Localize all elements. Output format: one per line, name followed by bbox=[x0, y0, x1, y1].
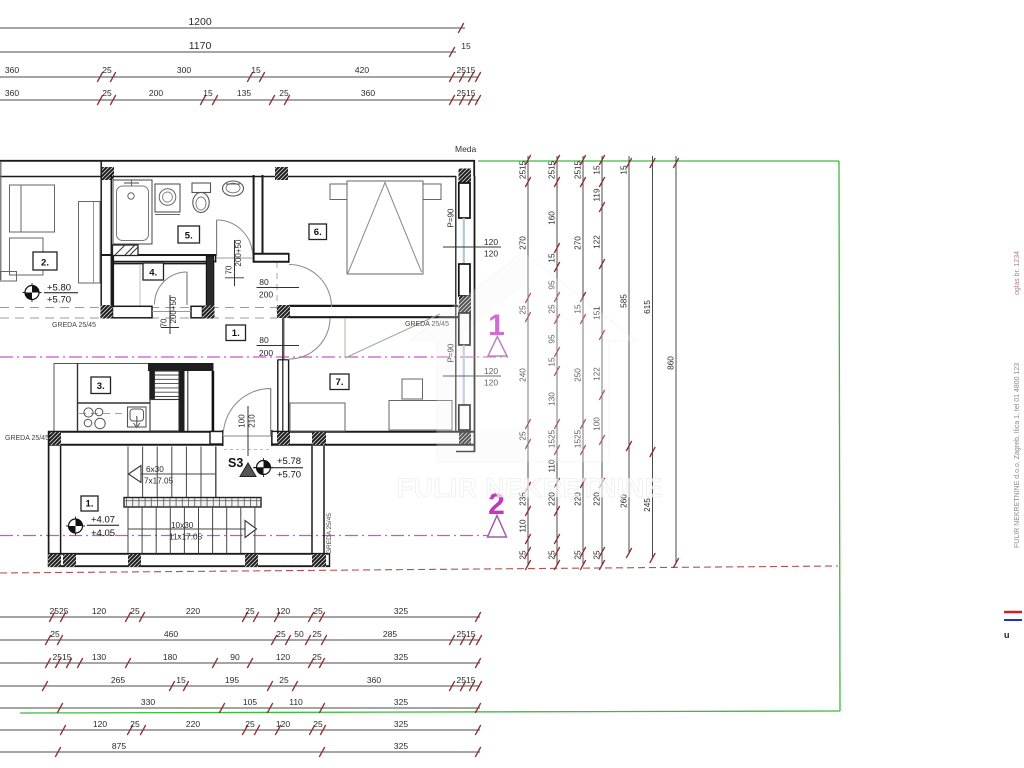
svg-text:25: 25 bbox=[313, 719, 323, 729]
svg-text:+5.70: +5.70 bbox=[47, 295, 71, 306]
svg-text:220: 220 bbox=[186, 719, 200, 729]
svg-text:200: 200 bbox=[149, 88, 163, 98]
svg-text:420: 420 bbox=[355, 65, 369, 75]
svg-text:70: 70 bbox=[160, 318, 169, 327]
svg-text:6.: 6. bbox=[314, 227, 322, 238]
svg-text:615: 615 bbox=[643, 300, 652, 314]
svg-text:70: 70 bbox=[225, 265, 234, 274]
svg-text:360: 360 bbox=[5, 88, 19, 98]
svg-text:119: 119 bbox=[593, 188, 602, 201]
svg-text:325: 325 bbox=[394, 606, 408, 616]
svg-text:2515: 2515 bbox=[457, 65, 476, 75]
svg-text:2515: 2515 bbox=[457, 88, 476, 98]
svg-text:5.: 5. bbox=[185, 231, 193, 242]
svg-text:25: 25 bbox=[130, 606, 140, 616]
svg-text:325: 325 bbox=[394, 741, 408, 751]
svg-text:25: 25 bbox=[279, 675, 289, 685]
svg-text:15: 15 bbox=[593, 165, 602, 175]
svg-text:15: 15 bbox=[461, 41, 471, 51]
svg-text:Meda: Meda bbox=[455, 144, 477, 154]
svg-text:200+50: 200+50 bbox=[234, 239, 243, 266]
svg-text:2.: 2. bbox=[41, 258, 49, 269]
svg-text:110: 110 bbox=[289, 697, 303, 707]
svg-text:80: 80 bbox=[259, 335, 269, 345]
svg-text:325: 325 bbox=[394, 719, 408, 729]
svg-text:25: 25 bbox=[279, 88, 289, 98]
svg-text:2515: 2515 bbox=[53, 652, 72, 662]
svg-text:875: 875 bbox=[112, 741, 126, 751]
svg-text:105: 105 bbox=[243, 697, 257, 707]
svg-text:25: 25 bbox=[313, 606, 323, 616]
svg-text:160: 160 bbox=[548, 211, 557, 225]
svg-text:P=90: P=90 bbox=[447, 208, 456, 227]
svg-text:135: 135 bbox=[237, 88, 251, 98]
svg-text:15: 15 bbox=[176, 675, 186, 685]
svg-text:220: 220 bbox=[186, 606, 200, 616]
svg-text:S3: S3 bbox=[228, 456, 243, 470]
svg-text:+4.05: +4.05 bbox=[91, 528, 115, 539]
svg-text:195: 195 bbox=[225, 675, 239, 685]
svg-text:3.: 3. bbox=[97, 381, 105, 392]
svg-text:1200: 1200 bbox=[188, 16, 212, 28]
svg-text:6x30: 6x30 bbox=[146, 465, 164, 474]
svg-text:200: 200 bbox=[259, 348, 273, 358]
svg-text:265: 265 bbox=[111, 675, 125, 685]
svg-text:10x30: 10x30 bbox=[171, 521, 194, 530]
svg-text:180: 180 bbox=[163, 652, 177, 662]
svg-text:130: 130 bbox=[92, 652, 106, 662]
svg-text:210: 210 bbox=[248, 414, 257, 428]
svg-text:GREDA 25/45: GREDA 25/45 bbox=[326, 513, 333, 554]
svg-text:120: 120 bbox=[276, 652, 290, 662]
svg-text:120: 120 bbox=[276, 719, 290, 729]
svg-text:25: 25 bbox=[50, 629, 60, 639]
svg-text:50: 50 bbox=[294, 629, 304, 639]
svg-text:100: 100 bbox=[238, 414, 247, 428]
svg-text:360: 360 bbox=[361, 88, 375, 98]
svg-text:+4.07: +4.07 bbox=[91, 515, 115, 526]
svg-text:25: 25 bbox=[102, 88, 112, 98]
svg-text:360: 360 bbox=[367, 675, 381, 685]
svg-text:FULIR NEKRETNINE d.o.o. Zagreb: FULIR NEKRETNINE d.o.o. Zagreb, Ilica 1,… bbox=[1014, 363, 1021, 548]
svg-text:330: 330 bbox=[141, 697, 155, 707]
svg-text:4.: 4. bbox=[149, 268, 157, 279]
svg-text:u: u bbox=[1004, 630, 1010, 640]
svg-text:+5.70: +5.70 bbox=[277, 470, 301, 481]
svg-text:325: 325 bbox=[394, 697, 408, 707]
svg-text:285: 285 bbox=[383, 629, 397, 639]
svg-text:+5.80: +5.80 bbox=[47, 283, 71, 294]
svg-text:2525: 2525 bbox=[50, 606, 69, 616]
svg-text:7.: 7. bbox=[336, 377, 344, 388]
svg-text:325: 325 bbox=[394, 652, 408, 662]
svg-text:FULIR NEKRETNINE: FULIR NEKRETNINE bbox=[397, 473, 663, 503]
svg-text:7x17.05: 7x17.05 bbox=[144, 477, 174, 486]
svg-text:122: 122 bbox=[593, 235, 602, 249]
svg-text:25: 25 bbox=[312, 629, 322, 639]
svg-text:oglas br. 1234: oglas br. 1234 bbox=[1014, 251, 1021, 295]
svg-text:120: 120 bbox=[484, 249, 498, 259]
svg-text:1.: 1. bbox=[86, 499, 94, 510]
svg-text:15: 15 bbox=[203, 88, 213, 98]
svg-text:25: 25 bbox=[312, 652, 322, 662]
svg-text:15: 15 bbox=[251, 65, 261, 75]
svg-text:110: 110 bbox=[519, 519, 528, 532]
svg-text:120: 120 bbox=[92, 606, 106, 616]
svg-text:860: 860 bbox=[667, 356, 676, 370]
svg-text:460: 460 bbox=[164, 629, 178, 639]
svg-text:GREDA 25/45: GREDA 25/45 bbox=[52, 322, 96, 329]
svg-text:200+50: 200+50 bbox=[169, 296, 178, 323]
svg-text:+5.78: +5.78 bbox=[277, 456, 301, 467]
svg-text:270: 270 bbox=[574, 236, 583, 250]
svg-text:15: 15 bbox=[548, 253, 557, 263]
svg-text:585: 585 bbox=[620, 294, 629, 308]
svg-text:90: 90 bbox=[230, 652, 240, 662]
svg-text:25: 25 bbox=[276, 629, 286, 639]
svg-text:80: 80 bbox=[259, 277, 269, 287]
svg-text:1.: 1. bbox=[232, 328, 240, 339]
svg-text:200: 200 bbox=[259, 290, 273, 300]
svg-text:120: 120 bbox=[484, 237, 498, 247]
svg-text:300: 300 bbox=[177, 65, 191, 75]
svg-text:360: 360 bbox=[5, 65, 19, 75]
svg-text:11x17.05: 11x17.05 bbox=[169, 533, 203, 542]
svg-text:120: 120 bbox=[93, 719, 107, 729]
svg-text:270: 270 bbox=[519, 236, 528, 250]
svg-text:25: 25 bbox=[102, 65, 112, 75]
svg-text:GREDA 25/45: GREDA 25/45 bbox=[5, 435, 49, 442]
svg-text:1170: 1170 bbox=[189, 40, 212, 52]
